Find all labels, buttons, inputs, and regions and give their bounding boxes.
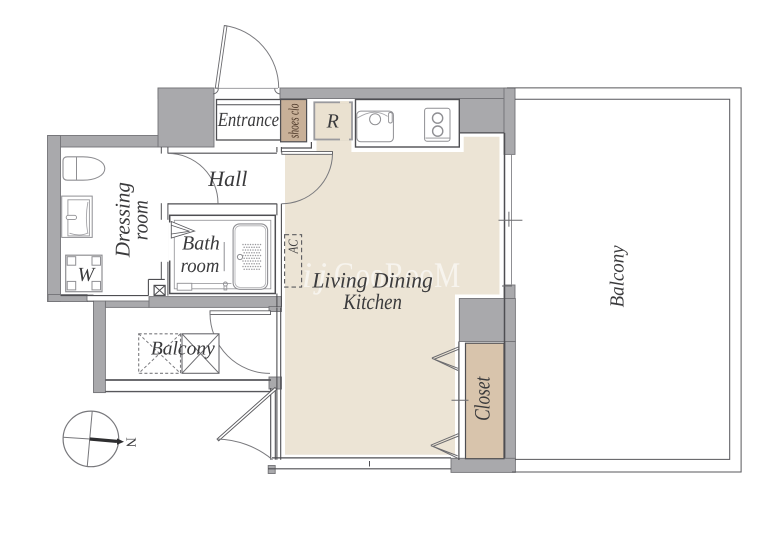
svg-text:Closet: Closet — [470, 376, 495, 421]
svg-text:Hall: Hall — [207, 166, 247, 191]
svg-text:AC: AC — [286, 239, 301, 255]
svg-text:W: W — [77, 264, 96, 286]
svg-text:Kitchen: Kitchen — [342, 289, 402, 314]
svg-text:room: room — [129, 200, 153, 240]
svg-text:Balcony: Balcony — [151, 339, 215, 360]
svg-text:room: room — [181, 255, 220, 277]
svg-text:Entrance: Entrance — [217, 109, 279, 131]
svg-text:N: N — [123, 437, 138, 447]
svg-text:Balcony: Balcony — [607, 245, 629, 307]
svg-text:R: R — [326, 111, 339, 133]
svg-text:Bath: Bath — [182, 233, 220, 255]
svg-text:shoes clo: shoes clo — [287, 104, 303, 139]
